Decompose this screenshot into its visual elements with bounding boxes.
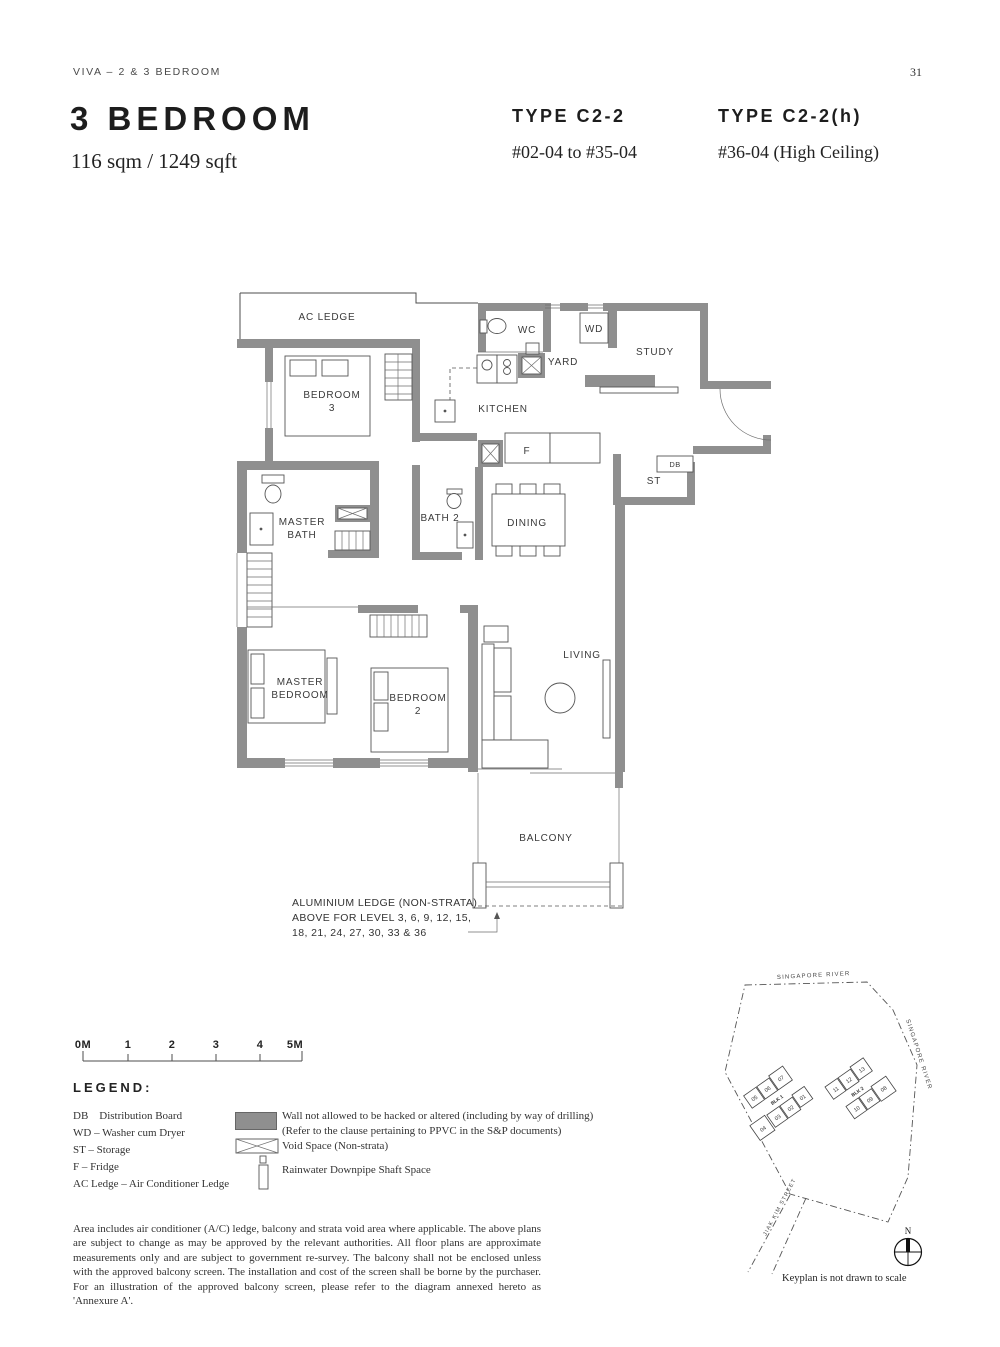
scale-label-0: 0M: [75, 1039, 91, 1051]
brochure-page: VIVA – 2 & 3 BEDROOM 31 3 BEDROOM 116 sq…: [0, 0, 1000, 1347]
keyplan-caption: Keyplan is not drawn to scale: [782, 1273, 907, 1284]
room-label-balcony: BALCONY: [519, 833, 572, 844]
north-label: N: [905, 1226, 912, 1236]
room-label-study: STUDY: [636, 347, 674, 358]
floorplan-svg: AC LEDGE BEDROOM 3 WC WD YARD STUDY KITC…: [230, 270, 800, 950]
room-label-master-bath-1: MASTER: [279, 517, 325, 528]
unit-area: 116 sqm / 1249 sqft: [71, 149, 237, 174]
keyplan-blk2: 11 12 13 BLK 2 10 09 08: [824, 1053, 896, 1123]
scale-label-4: 4: [257, 1039, 264, 1051]
page-header: VIVA – 2 & 3 BEDROOM: [73, 66, 221, 78]
legend-abbr-f: F – Fridge: [73, 1159, 119, 1176]
room-label-dining: DINING: [507, 518, 547, 529]
entry-door-arc: [720, 389, 771, 440]
legend-abbr-db: DB Distribution Board: [73, 1108, 182, 1125]
room-label-master-bath-2: BATH: [287, 530, 316, 541]
scale-label-3: 3: [213, 1039, 220, 1051]
legend-wall-text-2: (Refer to the clause pertaining to PPVC …: [282, 1124, 561, 1139]
room-label-bath2: BATH 2: [420, 513, 459, 524]
type-units-1: #02-04 to #35-04: [512, 142, 637, 163]
legend-abbr-ac: AC Ledge – Air Conditioner Ledge: [73, 1176, 229, 1193]
type-units-2: #36-04 (High Ceiling): [718, 142, 879, 163]
keyplan-river-right-label: SINGAPORE RIVER: [904, 1019, 932, 1091]
room-label-yard: YARD: [548, 357, 578, 368]
room-label-bedroom2-num: 2: [415, 706, 421, 717]
ac-ledge-outline: [240, 293, 478, 339]
room-label-bedroom3-num: 3: [329, 403, 335, 414]
aluminium-ledge-note: ALUMINIUM LEDGE (NON-STRATA) ABOVE FOR L…: [292, 897, 500, 939]
page-number: 31: [910, 65, 922, 80]
scale-label-1: 1: [125, 1039, 132, 1051]
legend-abbr-wd: WD – Washer cum Dryer: [73, 1125, 185, 1142]
legend-wall-text-1: Wall not allowed to be hacked or altered…: [282, 1109, 593, 1124]
room-label-ac-ledge: AC LEDGE: [299, 312, 356, 323]
note-line-2: ABOVE FOR LEVEL 3, 6, 9, 12, 15,: [292, 912, 471, 924]
room-label-db: DB: [669, 460, 680, 469]
note-arrow: [494, 912, 500, 919]
room-label-master-bedroom-1: MASTER: [277, 677, 323, 688]
legend-wall-swatch: [235, 1112, 277, 1130]
room-label-wc: WC: [518, 325, 536, 336]
unit-title: 3 BEDROOM: [70, 100, 315, 138]
room-label-kitchen: KITCHEN: [478, 404, 528, 415]
disclaimer-text: Area includes air conditioner (A/C) ledg…: [73, 1222, 541, 1308]
legend-abbr-st: ST – Storage: [73, 1142, 130, 1159]
legend-heading: LEGEND:: [73, 1080, 153, 1095]
room-label-bedroom2: BEDROOM: [389, 693, 446, 704]
scale-label-5: 5M: [287, 1039, 303, 1051]
note-line-1: ALUMINIUM LEDGE (NON-STRATA): [292, 897, 477, 909]
legend-void-text: Void Space (Non-strata): [282, 1139, 388, 1154]
legend-downpipe-symbol: [256, 1154, 270, 1192]
scale-label-2: 2: [169, 1039, 176, 1051]
type-label-1: TYPE C2-2: [512, 106, 626, 127]
scale-bar: 0M 1 2 3 4 5M: [73, 1036, 323, 1070]
room-label-living: LIVING: [563, 650, 601, 661]
legend-void-symbol: [235, 1138, 279, 1154]
keyplan-river-top-label: SINGAPORE RIVER: [777, 971, 851, 981]
legend-downpipe-text: Rainwater Downpipe Shaft Space: [282, 1163, 431, 1178]
type-label-2: TYPE C2-2(h): [718, 106, 862, 127]
room-label-fridge: F: [524, 446, 531, 457]
room-label-bedroom3: BEDROOM: [303, 390, 360, 401]
keyplan-svg: SINGAPORE RIVER SINGAPORE RIVER JIAK KIM…: [720, 962, 980, 1302]
room-label-master-bedroom-2: BEDROOM: [271, 690, 328, 701]
room-label-st: ST: [647, 476, 661, 487]
north-compass-icon: N: [895, 1226, 922, 1266]
note-line-3: 18, 21, 24, 27, 30, 33 & 36: [292, 927, 427, 939]
keyplan-blk1: 05 06 07 BLK 1 04 03 02 01: [733, 1063, 815, 1141]
room-label-wd: WD: [585, 324, 603, 335]
